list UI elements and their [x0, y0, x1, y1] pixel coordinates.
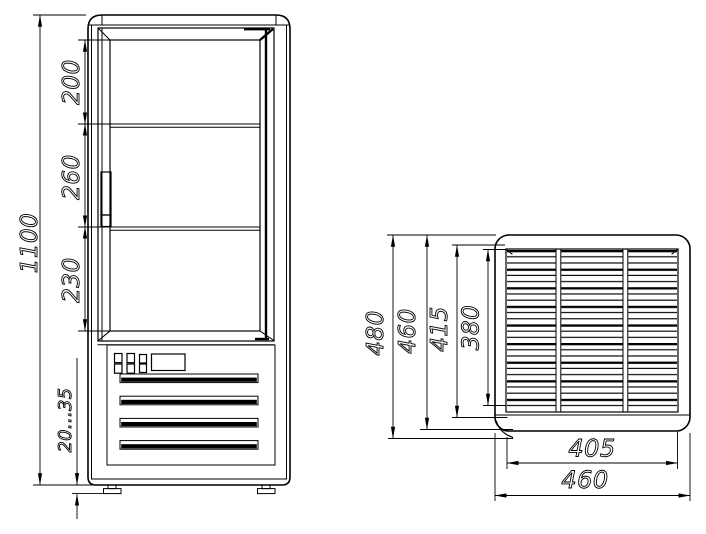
- dim-label-middle-shelf: 260: [59, 154, 85, 199]
- dim-label-lower-shelf: 230: [59, 257, 85, 302]
- drawing-canvas: 1100 200 260 230 20...35: [0, 0, 706, 534]
- dim-label-grille-depth: 380: [459, 305, 485, 350]
- door-gasket-shading: [244, 29, 270, 339]
- adjustable-feet: [104, 485, 276, 494]
- condenser-grille: [506, 249, 678, 412]
- dim-label-grille-outer-depth: 415: [427, 306, 453, 351]
- controller-display: [152, 354, 186, 371]
- dim-label-leg-range: 20...35: [56, 388, 76, 453]
- ventilation-louvers: [120, 374, 258, 449]
- compressor-panel: [107, 345, 275, 465]
- front-view: [88, 15, 290, 494]
- door-glass: [110, 40, 260, 331]
- refrigerated-cabinet-drawing: 1100 200 260 230 20...35: [0, 0, 706, 534]
- dim-label-upper-shelf: 200: [59, 59, 85, 104]
- glass-door: [98, 28, 274, 345]
- top-view: [495, 235, 690, 437]
- door-frame: [98, 28, 274, 341]
- dim-label-grille-width: 405: [568, 435, 615, 463]
- shelf-lines: [110, 124, 260, 230]
- control-switches: [115, 354, 147, 374]
- dim-label-body-depth: 460: [395, 308, 421, 353]
- front-view-dimensions: 1100 200 260 230 20...35: [17, 15, 128, 519]
- dim-label-overall-depth: 480: [363, 310, 389, 355]
- dim-label-overall-height: 1100: [17, 213, 43, 274]
- dim-label-body-width: 460: [561, 466, 608, 494]
- door-corner-bevels: [99, 29, 273, 340]
